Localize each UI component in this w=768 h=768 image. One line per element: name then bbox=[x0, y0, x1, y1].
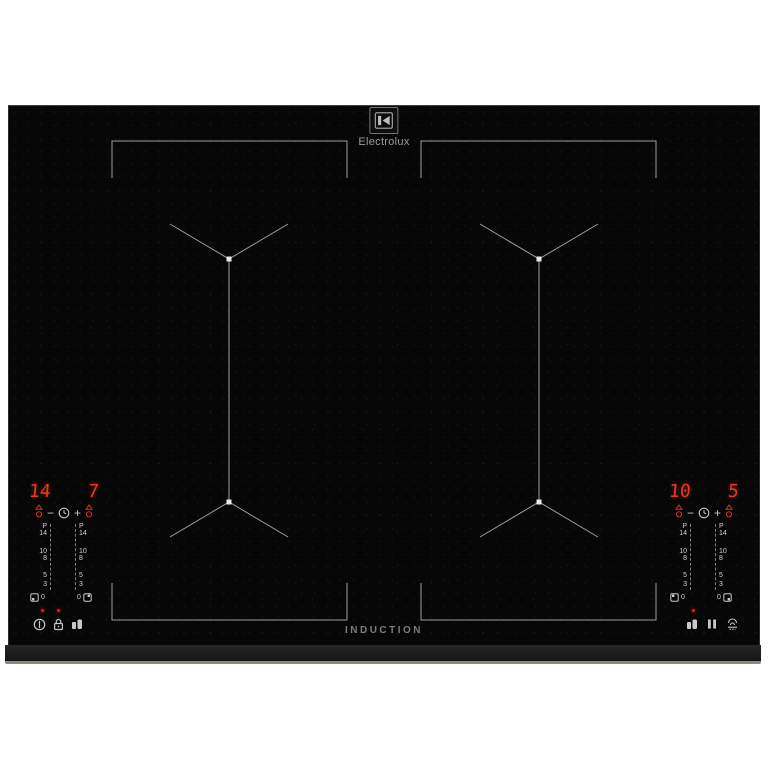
power-icon[interactable] bbox=[33, 618, 46, 631]
control-panel-left: 14 7 − + P 14 10 8 5 3 bbox=[24, 482, 104, 632]
lock-led bbox=[57, 609, 60, 612]
scale-label: P bbox=[719, 523, 724, 530]
scale-label: 5 bbox=[683, 572, 687, 579]
scale-label: P bbox=[42, 523, 47, 530]
scale-label: 8 bbox=[79, 555, 83, 562]
power-sliders-right: P 14 10 8 5 3 0 P 14 10 8 5 3 0 bbox=[664, 523, 744, 607]
timer-controls-right: − + bbox=[664, 505, 744, 521]
indicator-leds-left bbox=[24, 607, 104, 616]
scale-label: 8 bbox=[719, 555, 723, 562]
scale-label: 10 bbox=[39, 548, 47, 555]
flexible-zone-right bbox=[421, 141, 656, 620]
timer-indicator-stack bbox=[35, 504, 43, 523]
scale-label: 14 bbox=[39, 530, 47, 537]
timer-indicator-stack bbox=[85, 504, 93, 523]
scale-label: 3 bbox=[719, 581, 723, 588]
zone-level-display: 7 bbox=[87, 482, 100, 502]
power-slider-zone1[interactable]: P 14 10 8 5 3 0 bbox=[667, 523, 701, 605]
pause-icon[interactable] bbox=[707, 618, 717, 630]
bridge-led bbox=[692, 609, 695, 612]
indicator-leds-right bbox=[664, 607, 744, 616]
control-panel-right: 10 5 − + P 14 10 8 5 3 bbox=[664, 482, 744, 632]
timer-indicator-stack bbox=[725, 504, 733, 523]
hob-front-edge bbox=[5, 661, 761, 664]
zone-select-icon[interactable] bbox=[723, 593, 732, 602]
scale-label: 3 bbox=[683, 581, 687, 588]
scale-label: 8 bbox=[43, 555, 47, 562]
zone-select-icon[interactable] bbox=[30, 593, 39, 602]
scale-label: 0 bbox=[717, 594, 721, 601]
power-slider-zone2[interactable]: P 14 10 8 5 3 0 bbox=[65, 523, 99, 605]
plus-key[interactable]: + bbox=[73, 507, 82, 519]
power-slider-zone1[interactable]: P 14 10 8 5 3 0 bbox=[27, 523, 61, 605]
slider-track[interactable] bbox=[50, 524, 51, 590]
induction-label: INDUCTION bbox=[345, 625, 423, 636]
clock-icon[interactable] bbox=[58, 507, 70, 519]
minus-key[interactable]: − bbox=[46, 507, 55, 519]
function-keys-right bbox=[664, 616, 744, 632]
bridge-icon[interactable] bbox=[71, 618, 83, 630]
flexible-zone-left bbox=[112, 141, 347, 620]
power-level-display-left: 14 7 bbox=[24, 482, 104, 505]
power-level-display-right: 10 5 bbox=[664, 482, 744, 505]
scale-label: 10 bbox=[679, 548, 687, 555]
minus-key[interactable]: − bbox=[686, 507, 695, 519]
function-keys-left bbox=[24, 616, 104, 632]
scale-label: 10 bbox=[79, 548, 87, 555]
power-slider-zone2[interactable]: P 14 10 8 5 3 0 bbox=[705, 523, 739, 605]
scale-label: 3 bbox=[43, 581, 47, 588]
electrolux-emblem-icon bbox=[369, 107, 398, 134]
slider-track[interactable] bbox=[715, 524, 716, 590]
scale-label: 14 bbox=[719, 530, 727, 537]
scale-label: 5 bbox=[719, 572, 723, 579]
scale-label: 5 bbox=[79, 572, 83, 579]
power-led bbox=[41, 609, 44, 612]
zone-level-display: 10 bbox=[668, 482, 691, 502]
zone-select-icon[interactable] bbox=[670, 593, 679, 602]
scale-label: P bbox=[682, 523, 687, 530]
scale-label: 0 bbox=[41, 594, 45, 601]
slider-track[interactable] bbox=[75, 524, 76, 590]
timer-controls-left: − + bbox=[24, 505, 104, 521]
scale-label: 14 bbox=[79, 530, 87, 537]
timer-indicator-stack bbox=[675, 504, 683, 523]
scale-label: P bbox=[79, 523, 84, 530]
zone-level-display: 5 bbox=[727, 482, 740, 502]
brand-logo: Electrolux bbox=[358, 107, 409, 148]
hob2hood-icon[interactable] bbox=[726, 618, 739, 631]
clock-icon[interactable] bbox=[698, 507, 710, 519]
brand-wordmark: Electrolux bbox=[358, 136, 409, 148]
scale-label: 0 bbox=[77, 594, 81, 601]
scale-label: 0 bbox=[681, 594, 685, 601]
zone-level-display: 14 bbox=[28, 482, 51, 502]
plus-key[interactable]: + bbox=[713, 507, 722, 519]
scale-label: 14 bbox=[679, 530, 687, 537]
zone-select-icon[interactable] bbox=[83, 593, 92, 602]
scale-label: 8 bbox=[683, 555, 687, 562]
cooking-zone-markings bbox=[8, 105, 758, 645]
lock-icon[interactable] bbox=[53, 618, 64, 631]
scale-label: 3 bbox=[79, 581, 83, 588]
scale-label: 10 bbox=[719, 548, 727, 555]
scale-label: 5 bbox=[43, 572, 47, 579]
power-sliders-left: P 14 10 8 5 3 0 P 14 10 8 5 3 0 bbox=[24, 523, 104, 607]
hob-front-frame bbox=[5, 645, 761, 661]
bridge-icon[interactable] bbox=[686, 618, 698, 630]
slider-track[interactable] bbox=[690, 524, 691, 590]
